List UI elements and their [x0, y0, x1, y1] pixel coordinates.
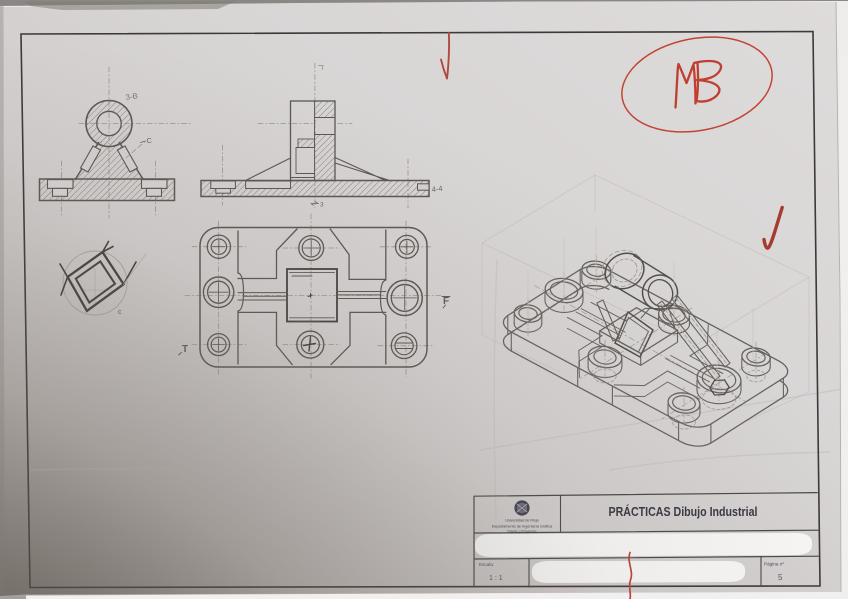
svg-text:Universidad de Rioja: Universidad de Rioja: [505, 519, 538, 523]
svg-text:1 : 1: 1 : 1: [489, 575, 503, 582]
svg-text:Escala:: Escala:: [479, 562, 494, 567]
svg-text:Departamento de Ingeniería Grá: Departamento de Ingeniería Gráfica: [492, 525, 553, 529]
svg-text:4-4: 4-4: [431, 184, 443, 194]
svg-text:3: 3: [320, 202, 324, 209]
svg-text:F: F: [443, 296, 449, 307]
svg-text:Diseño y Proyectos: Diseño y Proyectos: [507, 530, 537, 534]
svg-text:3-B: 3-B: [125, 91, 138, 102]
svg-text:Página nº: Página nº: [764, 562, 784, 567]
svg-text:T: T: [182, 344, 188, 355]
svg-text:c: c: [118, 309, 122, 316]
svg-text:5: 5: [778, 573, 783, 582]
svg-text:PRÁCTICAS Dibujo Industrial: PRÁCTICAS Dibujo Industrial: [609, 504, 758, 519]
svg-text:C: C: [147, 136, 153, 145]
